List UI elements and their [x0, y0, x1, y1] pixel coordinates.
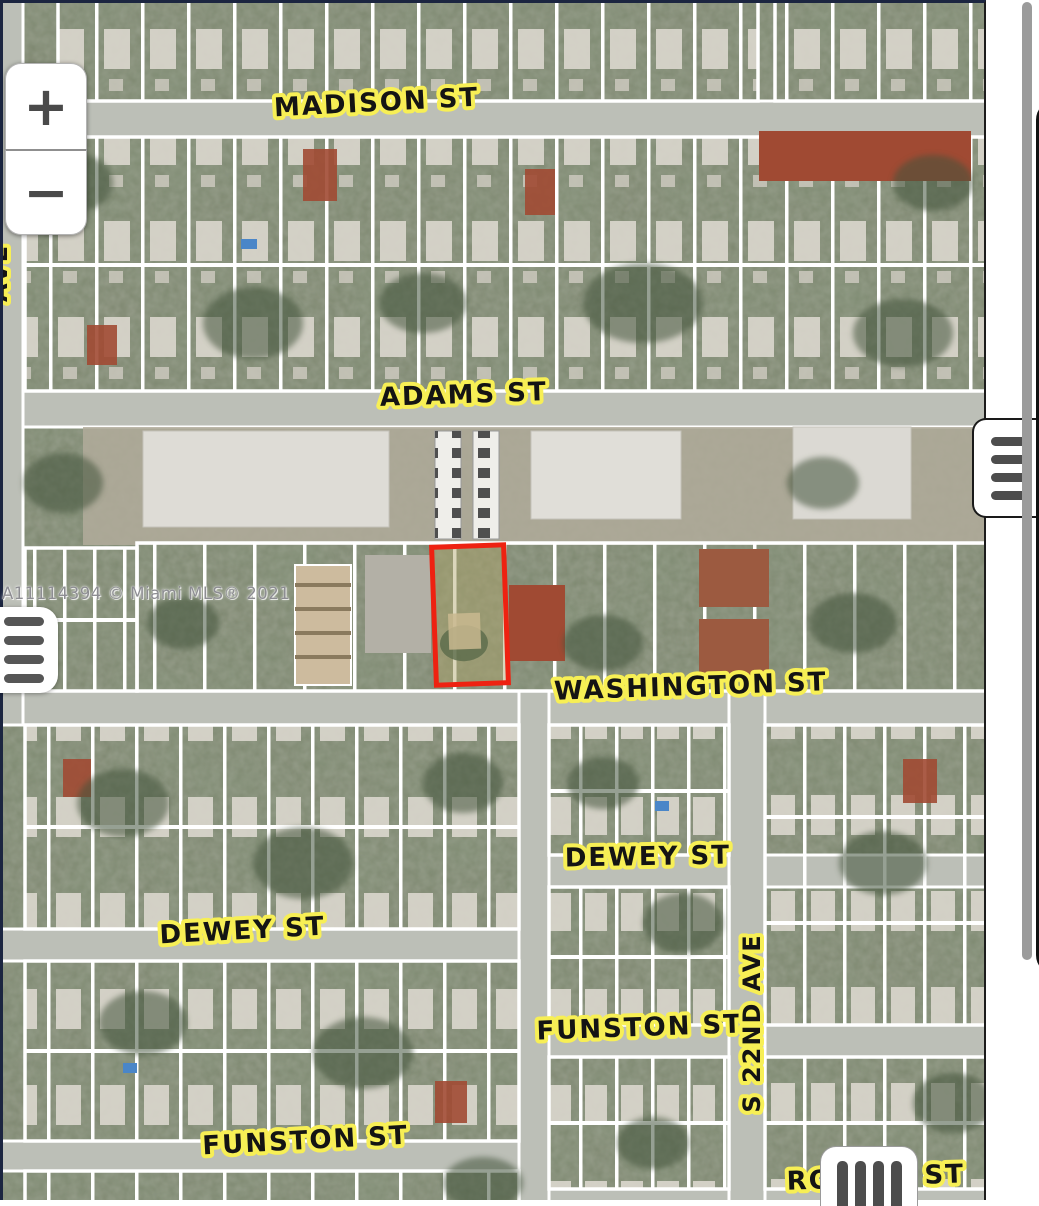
mls-watermark: A11114394 © Miami MLS® 2021 — [2, 584, 290, 603]
street-label-left-edge-partial: AVE — [3, 244, 13, 302]
street-label-adams: ADAMS ST — [379, 377, 548, 413]
street-label-s-22nd-ave: S 22ND AVE — [738, 933, 766, 1112]
left-edge-handle-button[interactable] — [0, 607, 58, 693]
bottom-edge-handle-button[interactable] — [820, 1146, 918, 1206]
zoom-in-button[interactable]: + — [5, 63, 87, 149]
grip-lines-vertical-icon — [837, 1161, 848, 1206]
zoom-control: + − — [5, 63, 87, 235]
street-label-dewey-east: DEWEY ST — [565, 841, 732, 874]
zoom-out-button[interactable]: − — [5, 149, 87, 235]
grip-lines-icon — [4, 617, 44, 626]
street-label-bottom-right-fragment: ST — [924, 1159, 965, 1190]
vertical-scrollbar-thumb[interactable] — [1022, 2, 1032, 960]
